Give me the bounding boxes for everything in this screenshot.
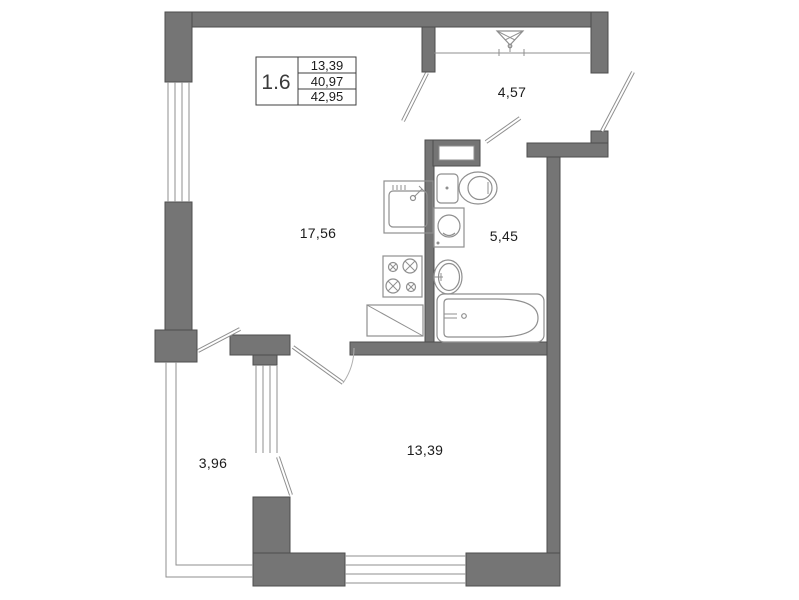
balcony-door-bedroom bbox=[278, 457, 291, 495]
room-label-bathroom: 5,45 bbox=[490, 228, 518, 244]
window-left bbox=[168, 82, 189, 202]
wall-left-mid bbox=[165, 202, 192, 330]
stove-icon bbox=[383, 256, 422, 297]
hallway-niche-line bbox=[434, 49, 590, 56]
bathroom-door bbox=[486, 118, 520, 142]
wall-t-bar bbox=[230, 335, 290, 355]
floor-plan: 1.6 13,39 40,97 42,95 4,57 17,56 5,45 3,… bbox=[0, 0, 799, 600]
title-block-value-living: 13,39 bbox=[311, 58, 344, 73]
room-label-balcony: 3,96 bbox=[199, 455, 227, 471]
wash-basin-icon bbox=[434, 260, 462, 294]
windows bbox=[166, 49, 590, 583]
wall-top bbox=[165, 12, 608, 27]
wall-left-upper bbox=[165, 12, 192, 82]
room-label-hallway: 4,57 bbox=[498, 84, 526, 100]
bedroom-door bbox=[293, 347, 354, 383]
wall-left-junction bbox=[155, 330, 197, 362]
wall-t-stem bbox=[253, 355, 277, 365]
wall-right-upper bbox=[591, 12, 608, 73]
wall-room-divider bbox=[350, 342, 547, 355]
washing-machine-icon bbox=[434, 208, 464, 247]
wall-right-lower bbox=[547, 157, 560, 586]
floor-plan-drawing: 1.6 13,39 40,97 42,95 4,57 17,56 5,45 3,… bbox=[0, 0, 799, 600]
entrance-door bbox=[602, 72, 633, 131]
kitchen-counter-icon bbox=[367, 305, 423, 336]
wall-bottom-right bbox=[466, 553, 560, 586]
room-label-bedroom: 13,39 bbox=[407, 442, 444, 458]
window-balcony-divider bbox=[256, 365, 277, 453]
window-bedroom-bottom bbox=[345, 556, 466, 583]
bathtub-icon bbox=[437, 294, 544, 342]
title-block: 1.6 13,39 40,97 42,95 bbox=[256, 57, 356, 105]
ventilation-icon bbox=[497, 31, 523, 52]
title-block-value-overall: 42,95 bbox=[311, 89, 344, 104]
toilet-icon bbox=[437, 172, 497, 204]
walls bbox=[155, 12, 608, 586]
fixtures bbox=[367, 31, 544, 342]
title-block-unit: 1.6 bbox=[261, 71, 290, 94]
vent-shaft-opening bbox=[439, 146, 474, 160]
wall-hallway-stub bbox=[422, 27, 435, 72]
wall-hall-bathroom bbox=[527, 143, 608, 157]
wall-kitchen-bathroom bbox=[425, 140, 434, 355]
title-block-value-total: 40,97 bbox=[311, 74, 344, 89]
wall-bottom-left bbox=[253, 553, 345, 586]
room-label-kitchen-living: 17,56 bbox=[300, 225, 337, 241]
living-room-door bbox=[403, 73, 427, 121]
